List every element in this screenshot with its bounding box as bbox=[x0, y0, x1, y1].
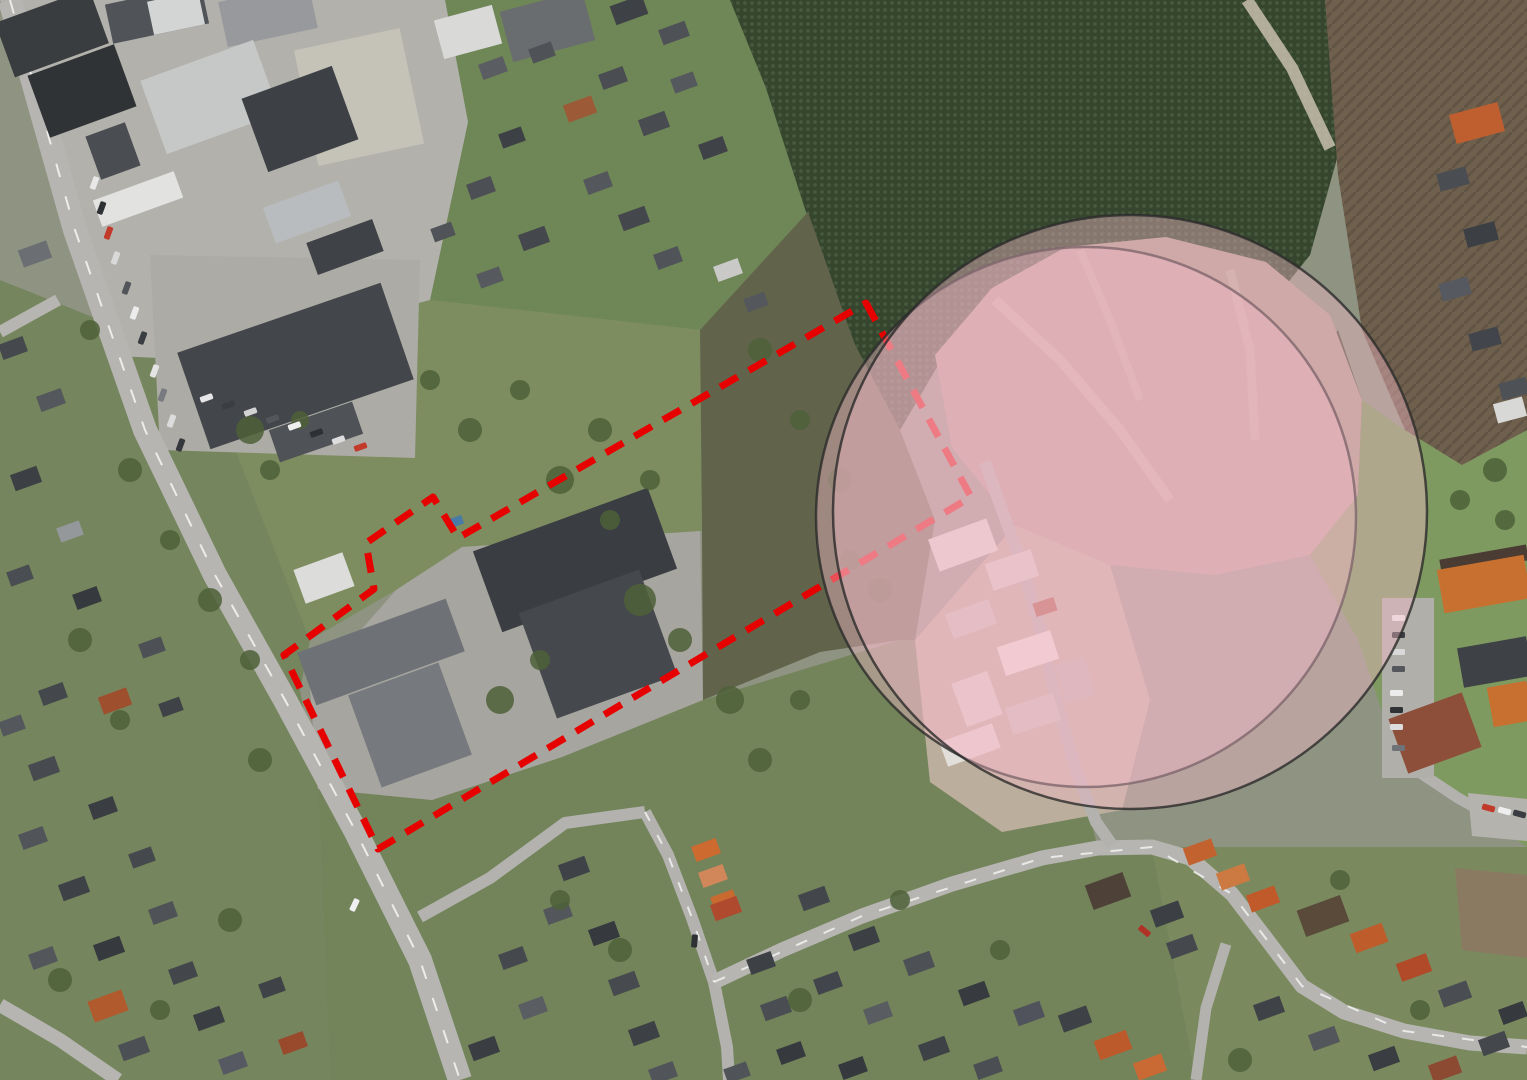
tree-canopy bbox=[600, 510, 620, 530]
tree-canopy bbox=[550, 890, 570, 910]
tree-canopy bbox=[990, 940, 1010, 960]
tree-canopy bbox=[1450, 490, 1470, 510]
tree-canopy bbox=[748, 748, 772, 772]
tree-canopy bbox=[260, 460, 280, 480]
tree-canopy bbox=[668, 628, 692, 652]
tree-canopy bbox=[640, 470, 660, 490]
corner-lot bbox=[1468, 793, 1527, 841]
school-building bbox=[1487, 681, 1527, 727]
tree-canopy bbox=[486, 686, 514, 714]
tree-canopy bbox=[240, 650, 260, 670]
car bbox=[691, 934, 698, 947]
aerial-map-view bbox=[0, 0, 1527, 1080]
impact-zone-circle-2 bbox=[833, 215, 1427, 809]
aerial-map bbox=[0, 0, 1527, 1080]
car bbox=[1390, 724, 1403, 730]
tree-canopy bbox=[588, 418, 612, 442]
tree-canopy bbox=[150, 1000, 170, 1020]
tree-canopy bbox=[530, 650, 550, 670]
tree-canopy bbox=[510, 380, 530, 400]
tree-canopy bbox=[1330, 870, 1350, 890]
tree-canopy bbox=[160, 530, 180, 550]
tree-canopy bbox=[624, 584, 656, 616]
car bbox=[1390, 690, 1403, 696]
tree-canopy bbox=[198, 588, 222, 612]
tree-canopy bbox=[48, 968, 72, 992]
tree-canopy bbox=[248, 748, 272, 772]
tree-canopy bbox=[788, 988, 812, 1012]
tree-canopy bbox=[748, 338, 772, 362]
car bbox=[1392, 666, 1405, 672]
car bbox=[1390, 707, 1403, 713]
tree-canopy bbox=[790, 410, 810, 430]
dirt-patch bbox=[1455, 868, 1527, 958]
tree-canopy bbox=[790, 690, 810, 710]
tree-canopy bbox=[80, 320, 100, 340]
tree-canopy bbox=[68, 628, 92, 652]
car bbox=[1392, 745, 1405, 751]
tree-canopy bbox=[1410, 1000, 1430, 1020]
tree-canopy bbox=[890, 890, 910, 910]
tree-canopy bbox=[218, 908, 242, 932]
tree-canopy bbox=[118, 458, 142, 482]
tree-canopy bbox=[420, 370, 440, 390]
tree-canopy bbox=[236, 416, 264, 444]
tree-canopy bbox=[716, 686, 744, 714]
tree-canopy bbox=[1228, 1048, 1252, 1072]
tree-canopy bbox=[110, 710, 130, 730]
tree-canopy bbox=[1483, 458, 1507, 482]
tree-canopy bbox=[1495, 510, 1515, 530]
tree-canopy bbox=[608, 938, 632, 962]
tree-canopy bbox=[458, 418, 482, 442]
